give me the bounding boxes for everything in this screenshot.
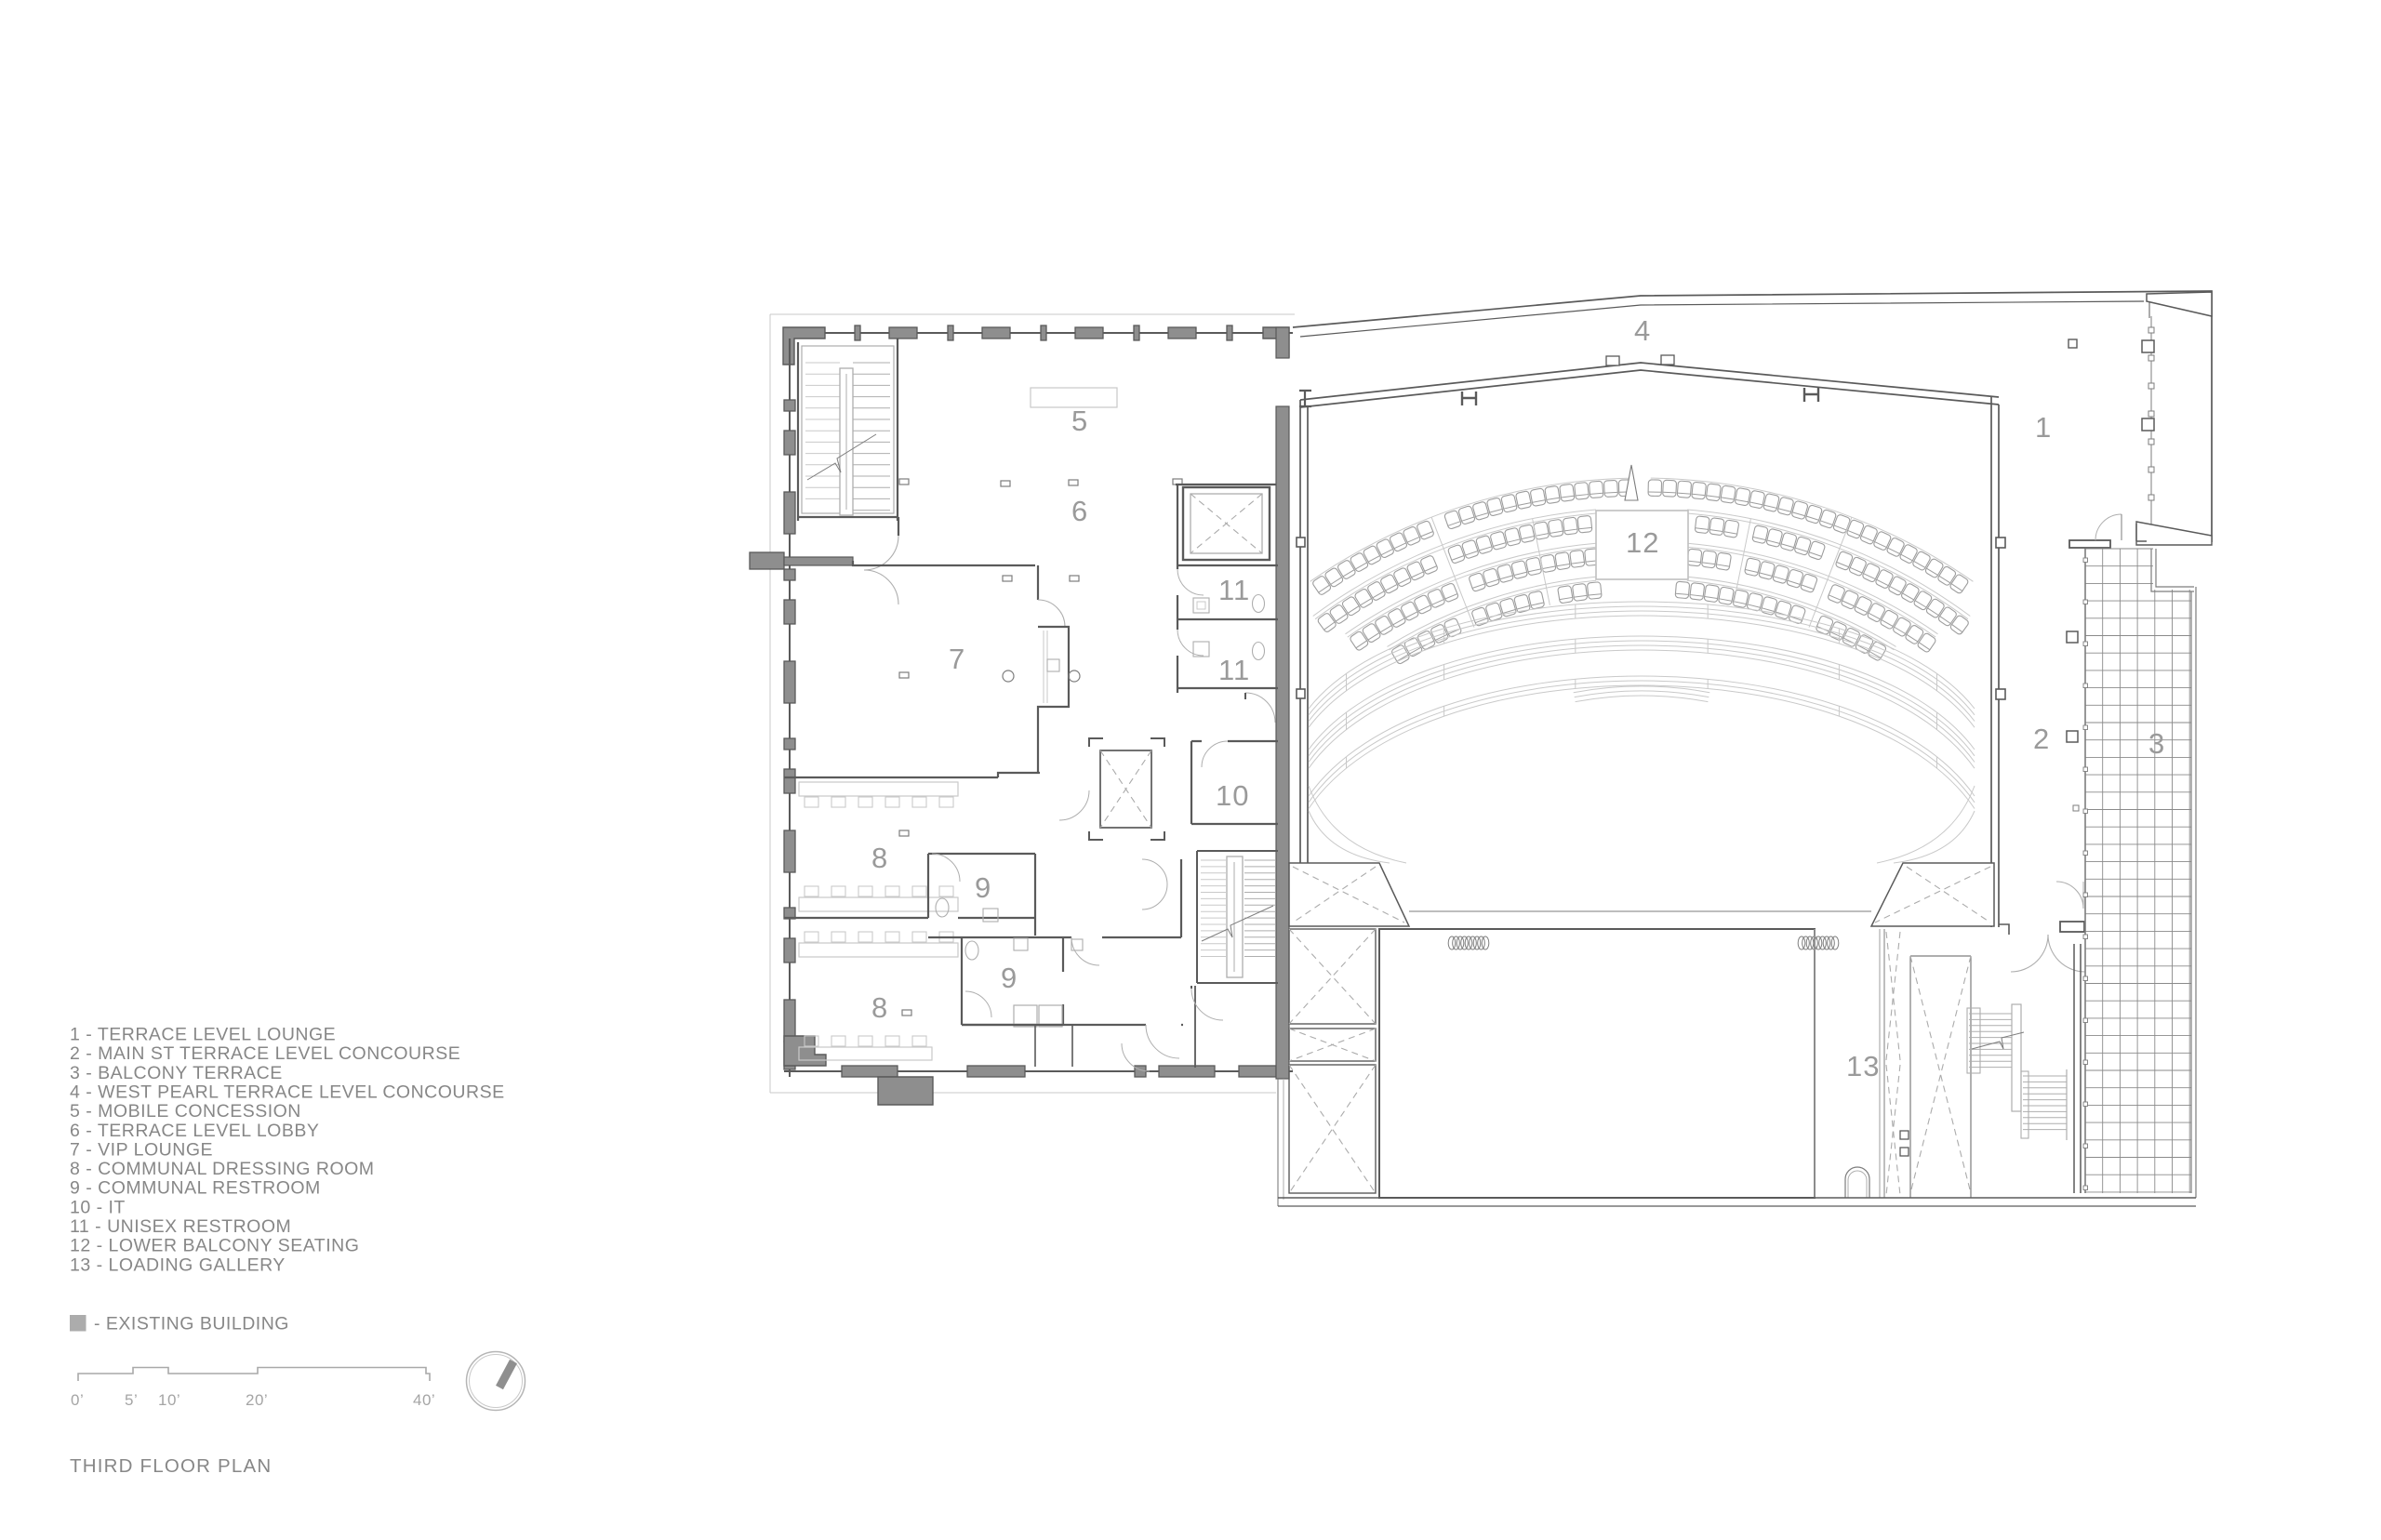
svg-text:- EXISTING BUILDING: - EXISTING BUILDING [94,1314,289,1334]
svg-text:11 - UNISEX RESTROOM: 11 - UNISEX RESTROOM [70,1216,291,1237]
svg-text:3: 3 [2148,727,2165,760]
svg-text:40’: 40’ [413,1391,435,1409]
svg-text:4 - WEST PEARL TERRACE LEVEL C: 4 - WEST PEARL TERRACE LEVEL CONCOURSE [70,1082,505,1103]
svg-text:11: 11 [1218,654,1250,686]
svg-text:5 - MOBILE CONCESSION: 5 - MOBILE CONCESSION [70,1101,301,1122]
svg-text:7: 7 [949,643,965,675]
svg-text:2: 2 [2033,723,2050,755]
svg-text:10’: 10’ [158,1391,180,1409]
svg-text:1 - TERRACE LEVEL LOUNGE: 1 - TERRACE LEVEL LOUNGE [70,1025,336,1045]
svg-text:8: 8 [871,842,888,874]
svg-text:12: 12 [1626,526,1659,559]
svg-text:10 - IT: 10 - IT [70,1197,126,1217]
svg-text:11: 11 [1218,574,1250,606]
svg-text:1: 1 [2035,411,2052,444]
svg-text:12 - LOWER BALCONY SEATING: 12 - LOWER BALCONY SEATING [70,1236,359,1256]
svg-text:9: 9 [975,871,991,904]
svg-text:8: 8 [871,991,888,1024]
svg-text:THIRD FLOOR PLAN: THIRD FLOOR PLAN [70,1455,272,1477]
svg-text:13 - LOADING GALLERY: 13 - LOADING GALLERY [70,1255,286,1275]
svg-text:7 - VIP LOUNGE: 7 - VIP LOUNGE [70,1139,213,1160]
svg-text:9 - COMMUNAL RESTROOM: 9 - COMMUNAL RESTROOM [70,1178,321,1199]
svg-text:3 - BALCONY TERRACE: 3 - BALCONY TERRACE [70,1063,283,1083]
svg-text:4: 4 [1634,314,1651,347]
svg-text:2 - MAIN ST TERRACE LEVEL CONC: 2 - MAIN ST TERRACE LEVEL CONCOURSE [70,1043,460,1064]
svg-text:9: 9 [1001,962,1018,994]
svg-text:10: 10 [1216,779,1249,812]
svg-text:13: 13 [1846,1050,1880,1082]
svg-text:6: 6 [1071,495,1088,527]
svg-text:8 - COMMUNAL DRESSING ROOM: 8 - COMMUNAL DRESSING ROOM [70,1159,375,1179]
svg-text:5’: 5’ [125,1391,138,1409]
svg-text:0’: 0’ [71,1391,84,1409]
svg-text:6 - TERRACE LEVEL LOBBY: 6 - TERRACE LEVEL LOBBY [70,1121,319,1141]
svg-text:20’: 20’ [246,1391,268,1409]
svg-text:5: 5 [1071,405,1088,437]
